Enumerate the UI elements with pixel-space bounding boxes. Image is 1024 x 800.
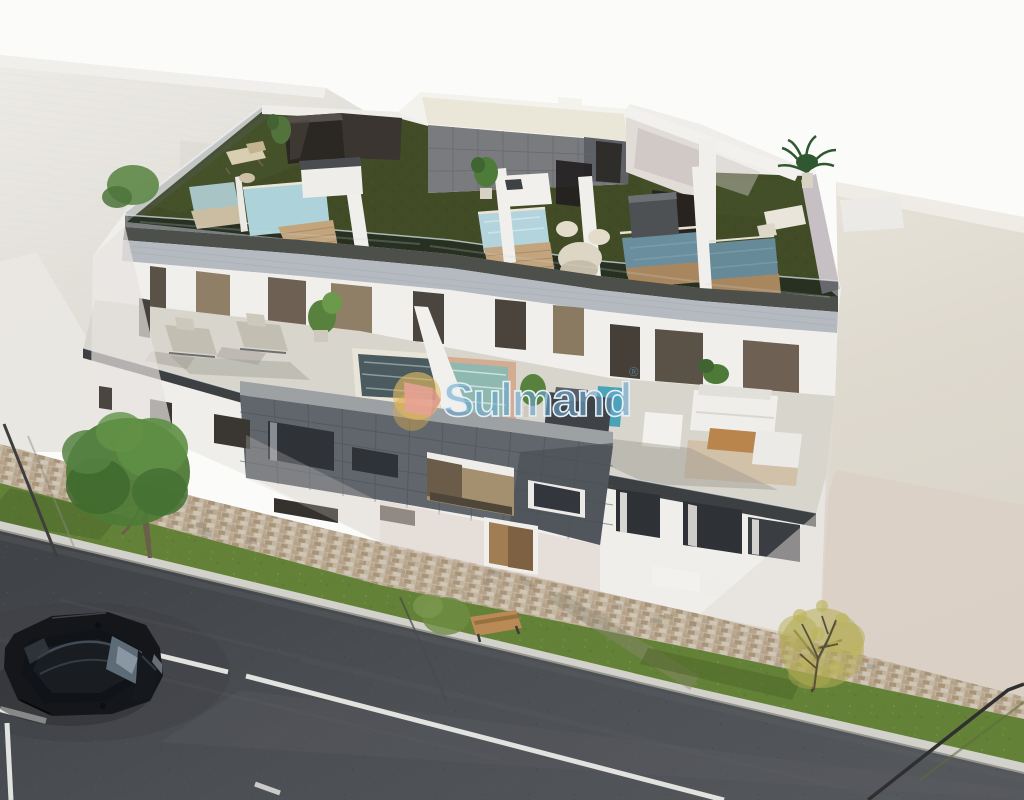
svg-text:®: ® bbox=[629, 364, 639, 379]
svg-text:Sulmand: Sulmand bbox=[443, 373, 631, 426]
